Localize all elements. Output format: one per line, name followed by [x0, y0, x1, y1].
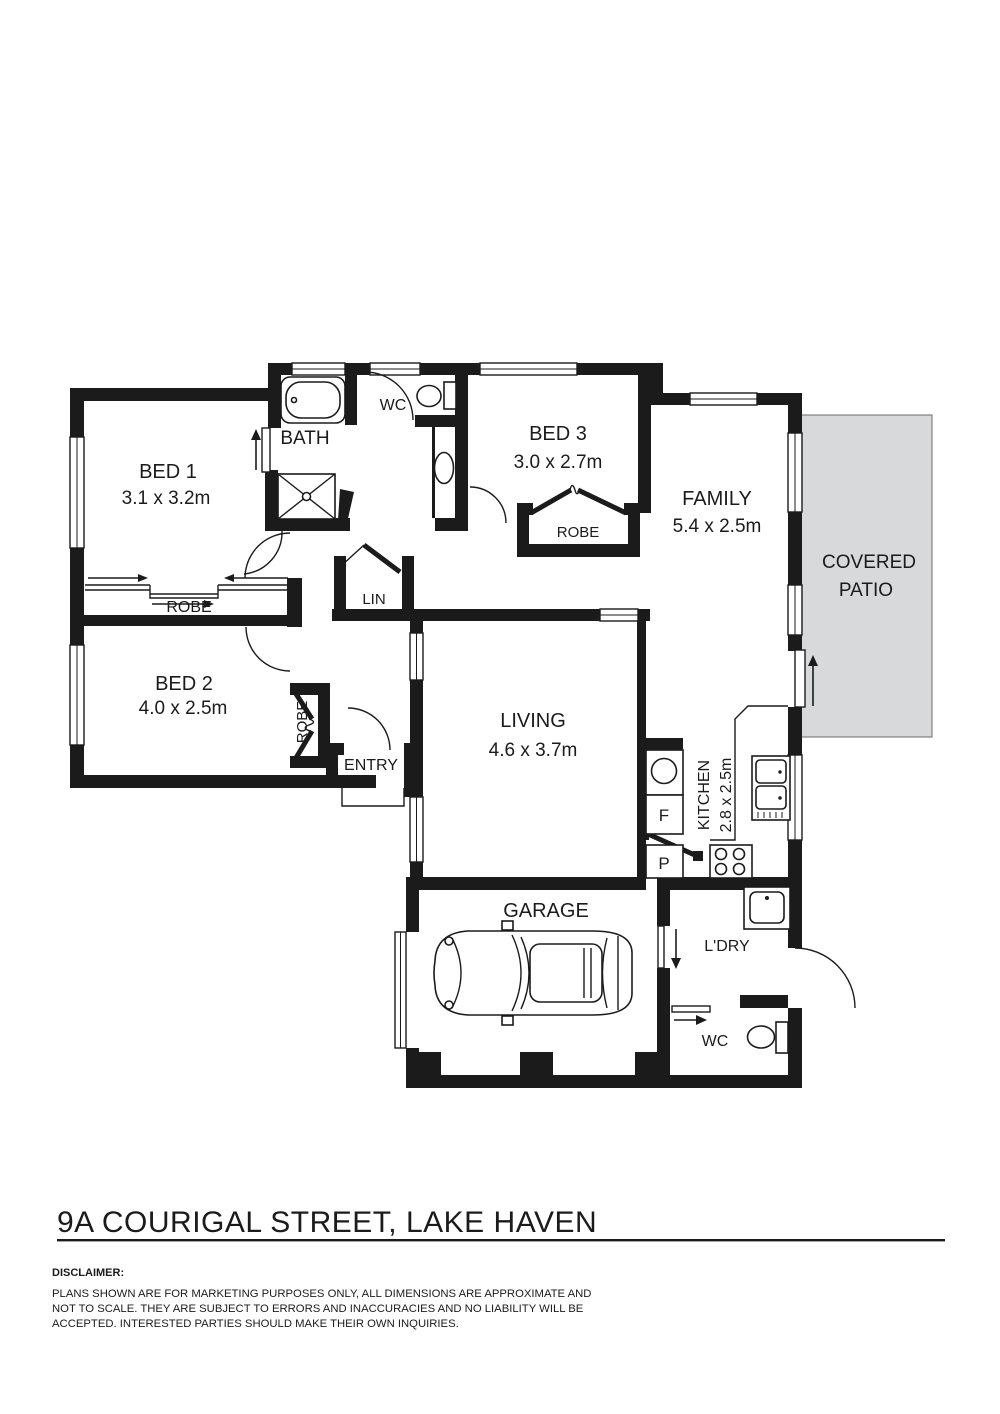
room-dims-kitchen: 2.8 x 2.5m [718, 758, 735, 833]
stove-icon [710, 845, 752, 878]
patio-label-line1: COVERED [822, 552, 916, 573]
kitchen-sink-icon [752, 756, 790, 820]
window [788, 433, 802, 512]
door-arc-bath [244, 531, 282, 574]
title-underline [57, 1239, 945, 1241]
shower-icon [278, 474, 335, 519]
disclaimer-line: PLANS SHOWN ARE FOR MARKETING PURPOSES O… [52, 1288, 591, 1300]
slider-arrow-icon [671, 929, 681, 969]
room-label-garage: GARAGE [503, 900, 589, 922]
room-label-kitchen: KITCHEN [696, 760, 713, 830]
fridge-label: F [659, 806, 669, 825]
door-arc-bed3 [470, 487, 506, 523]
slider-arrow-icon [224, 574, 288, 582]
patio-label-line2: PATIO [839, 580, 893, 601]
window [292, 363, 345, 375]
slider-panel [262, 428, 270, 472]
room-label-wc-bottom: WC [702, 1033, 729, 1050]
disclaimer-line: ACCEPTED. INTERESTED PARTIES SHOULD MAKE… [52, 1318, 459, 1330]
door-arc-bed1 [245, 533, 290, 578]
robe-label-bed1: ROBE [166, 599, 211, 616]
window [70, 437, 84, 548]
disclaimer-line: NOT TO SCALE. THEY ARE SUBJECT TO ERRORS… [52, 1303, 584, 1315]
window [480, 363, 577, 375]
garage-door [395, 932, 406, 1048]
room-label-linen: LIN [362, 591, 385, 608]
disclaimer-heading: DISCLAIMER: [52, 1267, 124, 1279]
room-label-entry: ENTRY [344, 757, 398, 774]
room-dims-living: 4.6 x 3.7m [489, 740, 578, 761]
window [600, 609, 638, 621]
door-arc-entry [348, 708, 390, 750]
slider-panel [672, 1006, 710, 1012]
room-label-bed1: BED 1 [139, 461, 197, 483]
robe-label-bed3: ROBE [557, 524, 600, 541]
porch-step [342, 788, 404, 806]
room-label-bed2: BED 2 [155, 673, 213, 695]
window [788, 585, 802, 635]
door-arc-bed2 [246, 627, 290, 671]
room-label-bath: BATH [280, 428, 329, 449]
toilet-icon [417, 382, 456, 409]
linen-door [341, 545, 400, 572]
room-label-laundry: L'DRY [704, 938, 750, 955]
window [410, 633, 423, 680]
car-icon [434, 921, 632, 1025]
pantry-label: P [658, 854, 669, 873]
slider-arrow-icon [88, 574, 148, 582]
door-arc-laundry-ext [795, 948, 855, 1008]
slider-arrow-icon [251, 429, 261, 470]
toilet-icon [748, 1022, 789, 1053]
room-label-living: LIVING [500, 710, 566, 732]
window [70, 645, 84, 745]
bifold-robe-bed3 [531, 486, 626, 514]
bath-door-leaf [338, 489, 354, 523]
slider-panel [795, 650, 805, 707]
slider-arrow-icon [674, 1015, 707, 1025]
laundry-tub-icon [744, 887, 790, 929]
slider-panel [658, 926, 664, 968]
room-dims-family: 5.4 x 2.5m [673, 516, 762, 537]
basin-icon [435, 453, 454, 484]
room-label-family: FAMILY [682, 488, 752, 510]
room-label-bed3: BED 3 [529, 423, 587, 445]
room-dims-bed2: 4.0 x 2.5m [139, 698, 228, 719]
covered-patio-area [800, 415, 932, 737]
room-dims-bed3: 3.0 x 2.7m [514, 452, 603, 473]
floor-plan-svg: BED 1 3.1 x 3.2m BATH WC BED 3 3.0 x 2.7… [0, 0, 1000, 1414]
room-label-wc-top: WC [380, 397, 407, 414]
bathtub-icon [281, 377, 345, 423]
window [410, 797, 423, 862]
page-title: 9A COURIGAL STREET, LAKE HAVEN [57, 1206, 597, 1239]
room-dims-bed1: 3.1 x 3.2m [122, 488, 211, 509]
window [690, 393, 757, 405]
robe-label-bed2: ROBE [294, 701, 311, 744]
floorplan-page: BED 1 3.1 x 3.2m BATH WC BED 3 3.0 x 2.7… [0, 0, 1000, 1414]
